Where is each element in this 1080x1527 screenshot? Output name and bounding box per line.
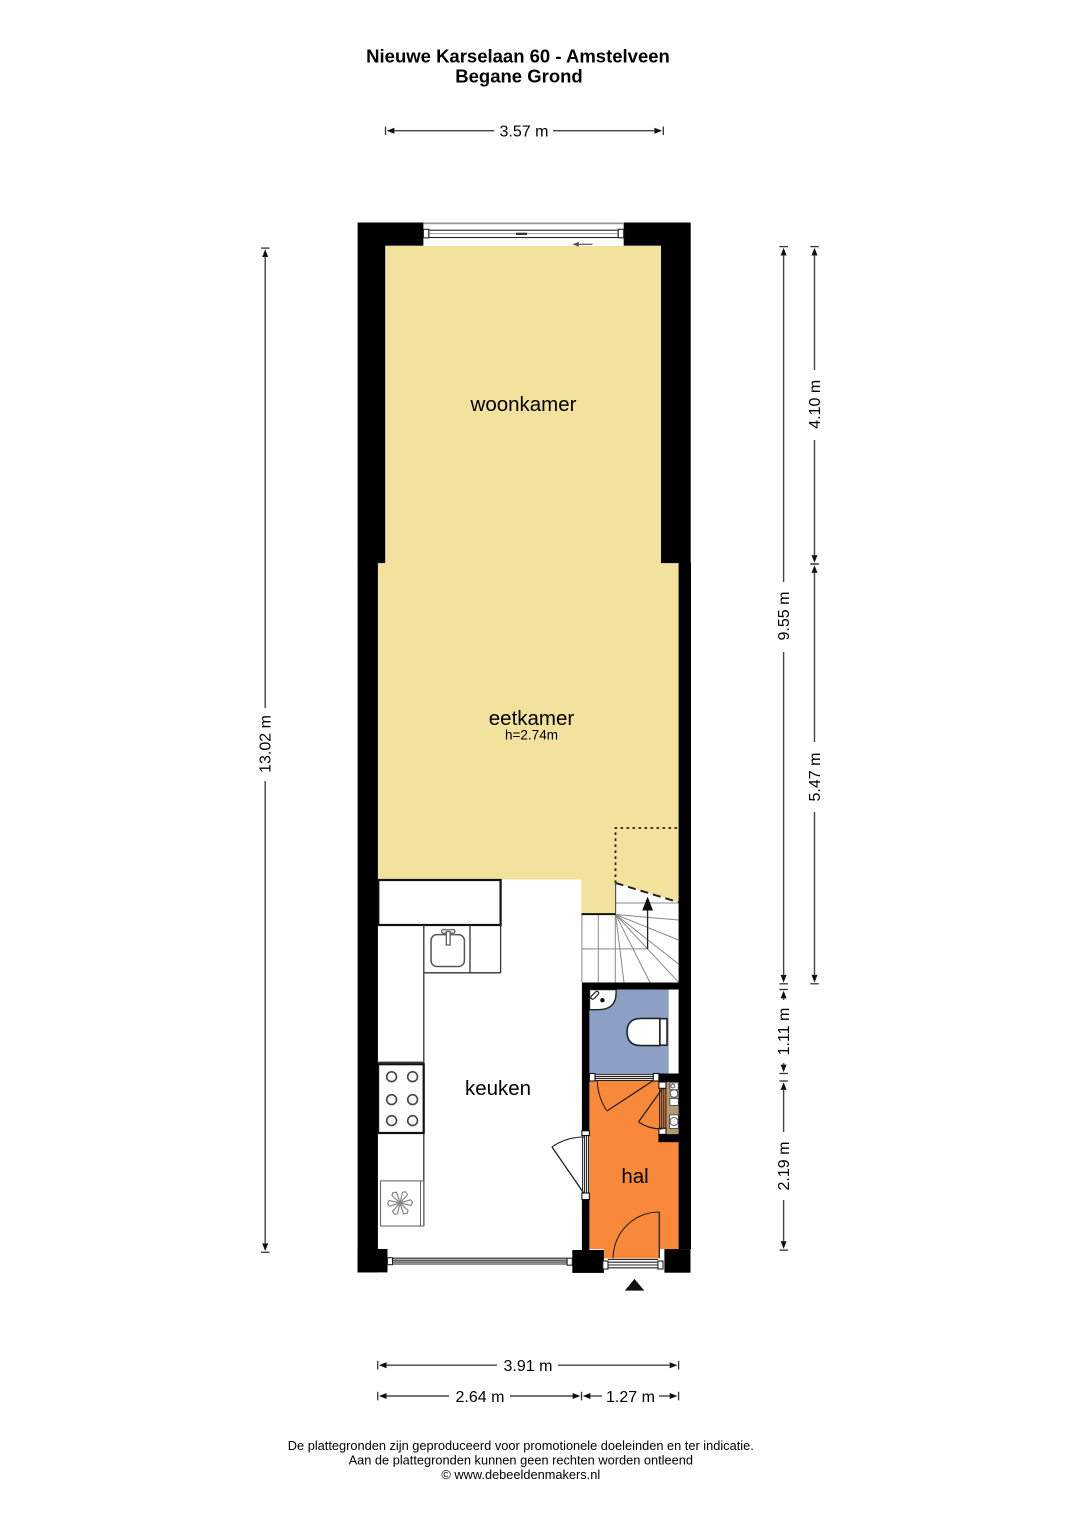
svg-text:hal: hal (621, 1165, 648, 1188)
svg-text:1.27 m: 1.27 m (606, 1389, 655, 1406)
svg-text:woonkamer: woonkamer (470, 393, 577, 416)
svg-text:Begane Grond: Begane Grond (455, 66, 582, 87)
svg-text:© www.debeeldenmakers.nl: © www.debeeldenmakers.nl (441, 1467, 600, 1482)
svg-text:3.91 m: 3.91 m (504, 1358, 553, 1375)
svg-text:keuken: keuken (465, 1077, 531, 1100)
svg-text:2.64 m: 2.64 m (456, 1389, 505, 1406)
svg-text:13.02 m: 13.02 m (258, 715, 275, 773)
svg-text:2.19 m: 2.19 m (776, 1142, 793, 1191)
svg-text:3.57 m: 3.57 m (500, 124, 549, 141)
svg-text:h=2.74m: h=2.74m (505, 728, 558, 743)
svg-text:9.55 m: 9.55 m (776, 592, 793, 641)
svg-text:De plattegronden zijn geproduc: De plattegronden zijn geproduceerd voor … (288, 1438, 754, 1453)
svg-text:Aan de plattegronden kunnen ge: Aan de plattegronden kunnen geen rechten… (349, 1452, 693, 1467)
svg-text:Nieuwe Karselaan 60 - Amstelve: Nieuwe Karselaan 60 - Amstelveen (366, 46, 670, 67)
svg-text:5.47 m: 5.47 m (807, 753, 824, 802)
svg-text:1.11 m: 1.11 m (776, 1008, 793, 1056)
svg-text:4.10 m: 4.10 m (807, 380, 824, 429)
